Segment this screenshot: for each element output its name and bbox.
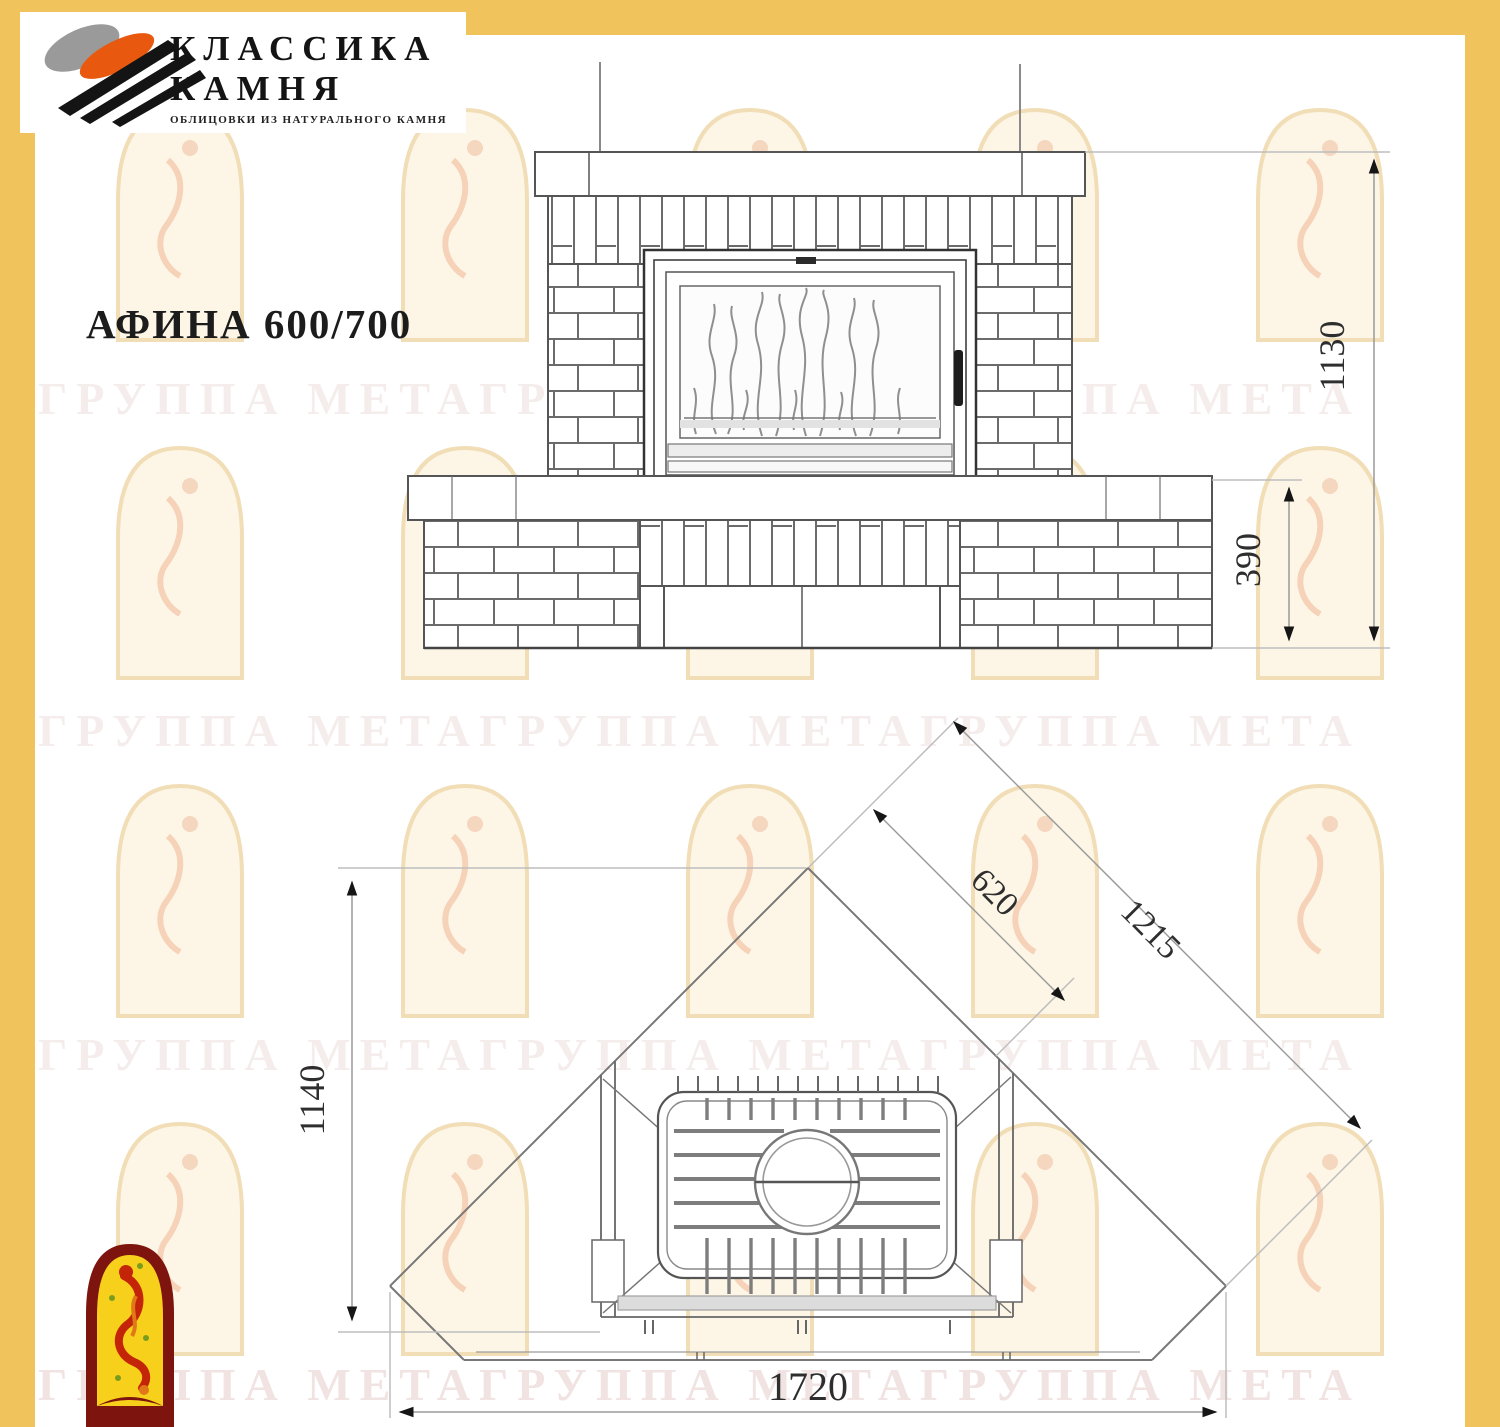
air-vent-lower	[668, 461, 952, 472]
front-fender	[618, 1296, 996, 1310]
dim-label-front-width: 1720	[768, 1364, 848, 1409]
bottom-grate	[694, 1238, 920, 1294]
base-soldier-course	[640, 520, 960, 586]
brand-name-line1: КЛАССИКА	[170, 29, 437, 68]
hearth-slab	[408, 476, 1212, 520]
page-title: АФИНА 600/700	[86, 300, 412, 348]
frame-left	[0, 0, 35, 1427]
plan-extension-lines	[338, 718, 958, 868]
cooling-fins	[678, 1076, 938, 1092]
ember-bed	[680, 420, 940, 428]
firebird-arch-logo-icon	[84, 1236, 176, 1427]
dim-line-620	[874, 810, 1064, 1000]
dim-label-total-height: 1130	[1312, 321, 1352, 392]
air-vent-upper	[668, 444, 952, 457]
brand-tagline: ОБЛИЦОВКИ ИЗ НАТУРАЛЬНОГО КАМНЯ	[170, 114, 447, 126]
right-jamb	[990, 1240, 1022, 1302]
dim-label-plinth-height: 390	[1228, 533, 1268, 587]
insert-top-view	[618, 1076, 996, 1334]
base-right-block	[960, 520, 1212, 648]
frame-right	[1465, 0, 1500, 1427]
door-latch	[796, 257, 816, 264]
dim-label-plan-depth: 620	[963, 861, 1025, 923]
right-stone-pillar	[976, 264, 1072, 490]
company-logo-graphic: КЛАССИКА КАМНЯ ОБЛИЦОВКИ ИЗ НАТУРАЛЬНОГО…	[20, 12, 466, 133]
base-left-block	[424, 520, 640, 648]
company-logo: КЛАССИКА КАМНЯ ОБЛИЦОВКИ ИЗ НАТУРАЛЬНОГО…	[20, 12, 466, 133]
brand-name-line2: КАМНЯ	[170, 69, 346, 108]
left-jamb	[592, 1240, 624, 1302]
front-elevation-view	[408, 62, 1212, 648]
dim-label-wall-length: 1215	[1113, 892, 1187, 966]
page: { "brand": { "name_line1": "КЛАССИКА", "…	[0, 0, 1500, 1427]
plan-view-dimensions: 1140 620 1215 1720	[292, 722, 1372, 1418]
firebox-glass	[680, 286, 940, 438]
left-stone-pillar	[548, 264, 644, 490]
mantel-shelf	[535, 152, 1085, 196]
dim-label-plan-height: 1140	[292, 1065, 332, 1136]
door-handle	[954, 350, 963, 406]
plan-view	[338, 718, 1226, 1360]
fireplace-technical-drawing: 1130 390 1140	[0, 0, 1500, 1427]
firebox-insert	[644, 250, 976, 497]
flue-anchor-lines	[600, 62, 1020, 152]
